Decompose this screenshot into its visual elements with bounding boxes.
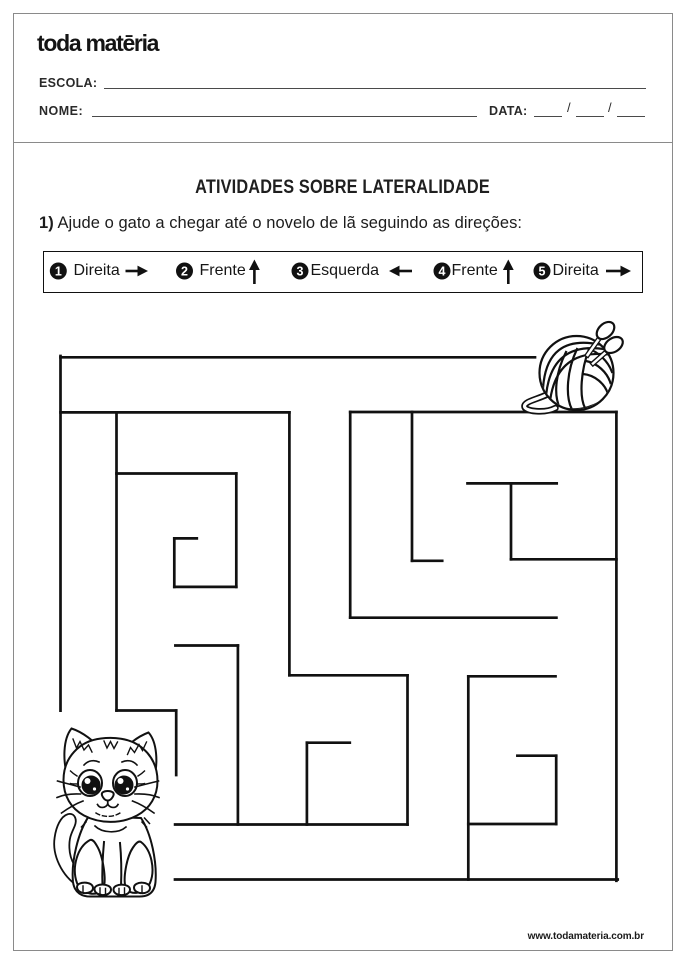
svg-text:4: 4 xyxy=(439,265,446,279)
svg-text:2: 2 xyxy=(181,265,188,279)
svg-text:1: 1 xyxy=(55,265,62,279)
svg-text:5: 5 xyxy=(539,265,546,279)
svg-text:3: 3 xyxy=(297,265,304,279)
